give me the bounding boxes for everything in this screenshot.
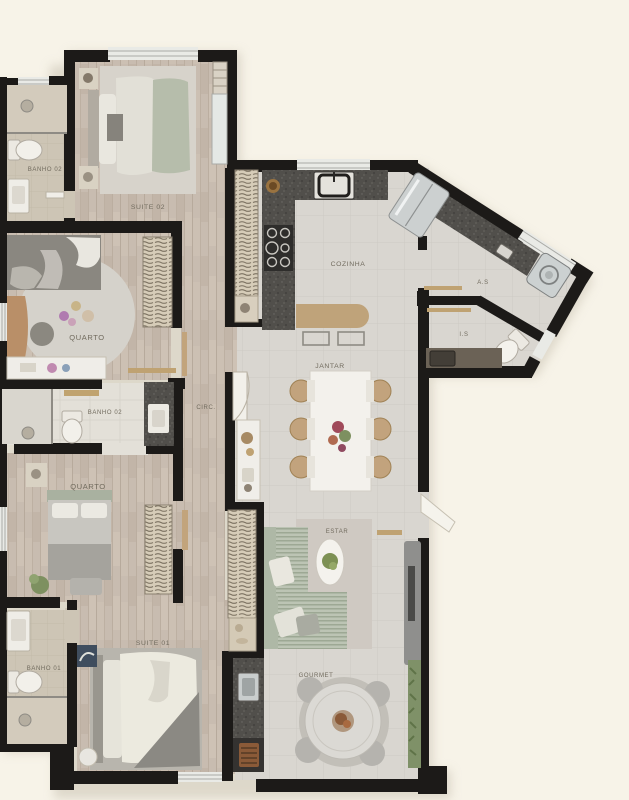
svg-text:SUITE 01: SUITE 01: [136, 640, 170, 647]
svg-text:BANHO 02: BANHO 02: [28, 167, 63, 173]
svg-text:BANHO 01: BANHO 01: [27, 666, 62, 672]
svg-text:QUARTO: QUARTO: [70, 482, 105, 491]
svg-text:ESTAR: ESTAR: [326, 529, 349, 535]
svg-text:BANHO 02: BANHO 02: [88, 410, 123, 416]
svg-text:GOURMET: GOURMET: [299, 673, 334, 679]
svg-text:A.S: A.S: [477, 280, 488, 286]
svg-text:I.S: I.S: [459, 332, 468, 338]
svg-text:QUARTO: QUARTO: [69, 333, 104, 342]
svg-text:JANTAR: JANTAR: [315, 363, 345, 370]
svg-text:SUITE 02: SUITE 02: [131, 204, 165, 211]
svg-text:COZINHA: COZINHA: [331, 261, 366, 268]
svg-text:CIRC.: CIRC.: [196, 405, 215, 411]
